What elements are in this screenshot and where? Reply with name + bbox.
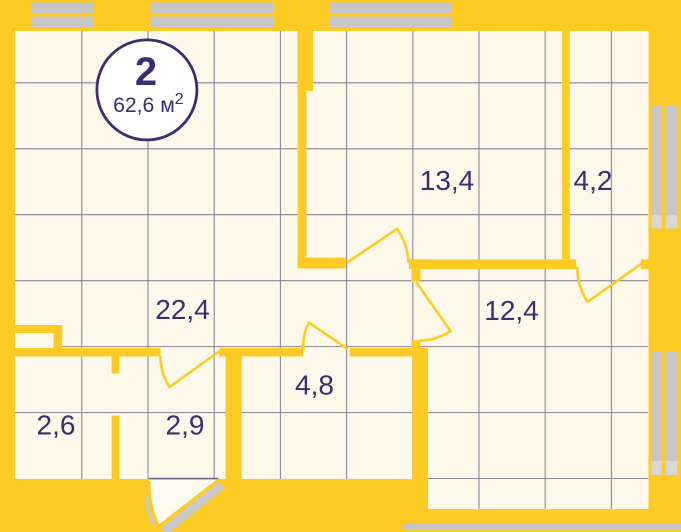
- svg-text:13,4: 13,4: [420, 165, 475, 196]
- svg-text:12,4: 12,4: [484, 295, 539, 326]
- svg-text:4,2: 4,2: [574, 165, 613, 196]
- svg-text:2,9: 2,9: [166, 410, 205, 441]
- svg-text:2: 2: [135, 50, 157, 94]
- svg-text:22,4: 22,4: [155, 294, 210, 325]
- svg-text:4,8: 4,8: [295, 369, 334, 400]
- svg-text:2,6: 2,6: [37, 410, 76, 441]
- svg-text:62,6 м2: 62,6 м2: [113, 91, 184, 117]
